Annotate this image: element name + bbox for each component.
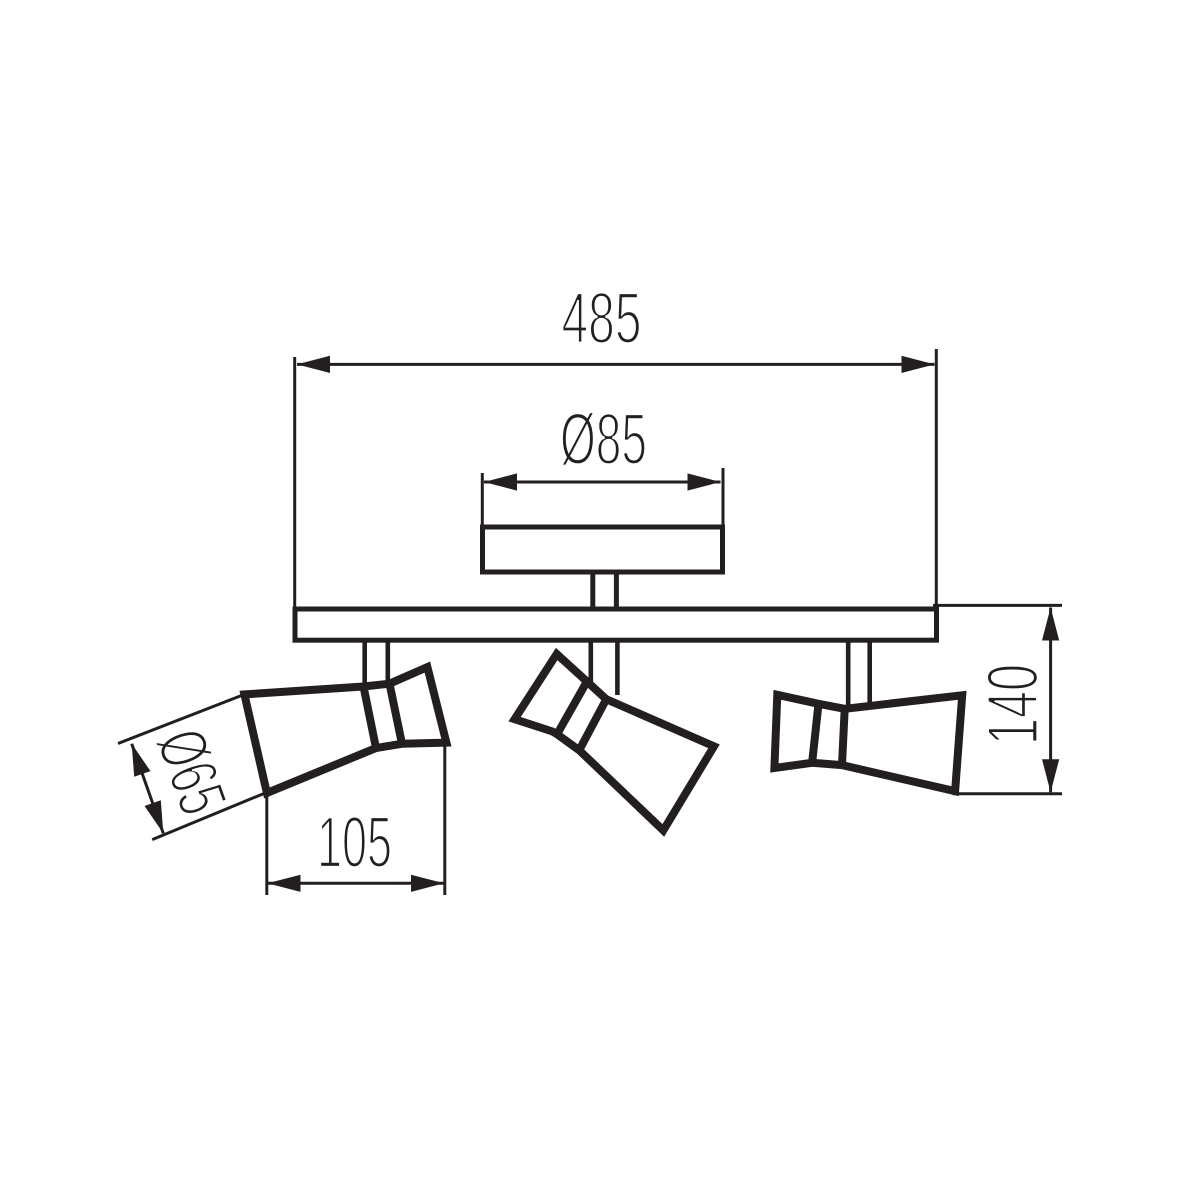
- svg-text:105: 105: [317, 803, 392, 883]
- svg-text:485: 485: [562, 279, 642, 359]
- svg-text:Ø85: Ø85: [560, 400, 647, 480]
- svg-text:140: 140: [974, 664, 1054, 745]
